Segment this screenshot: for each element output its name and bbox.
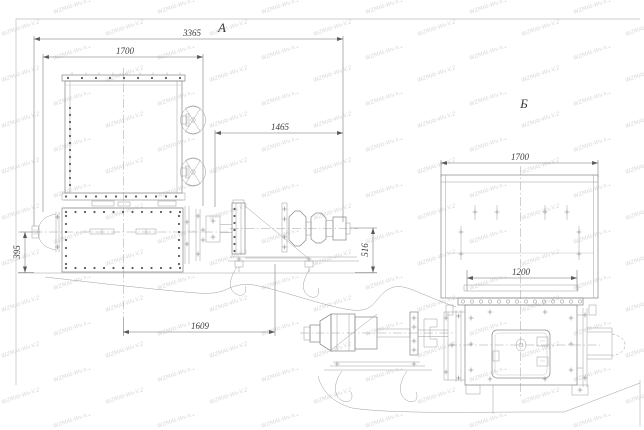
dim-drive-span-value: 1465: [271, 122, 290, 132]
drawing-sheet: WZMAt-Wv.V.2 WZMAt-Wv.V.2 A 3365 1700 14…: [0, 0, 644, 430]
watermark-layer: [0, 0, 644, 430]
dim-drive-axis-height-value: 516: [360, 243, 370, 257]
dim-axis-height-value: 395: [12, 245, 22, 260]
engineering-drawing-canvas: WZMAt-Wv.V.2 WZMAt-Wv.V.2 A 3365 1700 14…: [0, 0, 644, 430]
dim-total-length-value: 3365: [182, 28, 202, 38]
dim-opening-width-value: 1200: [512, 267, 531, 277]
view-a-label: A: [217, 20, 226, 35]
dim-housing-width-a-value: 1700: [116, 46, 135, 56]
dim-housing-width-b-value: 1700: [511, 152, 530, 162]
view-b-label: Б: [519, 96, 528, 111]
dim-base-span-value: 1609: [191, 321, 210, 331]
